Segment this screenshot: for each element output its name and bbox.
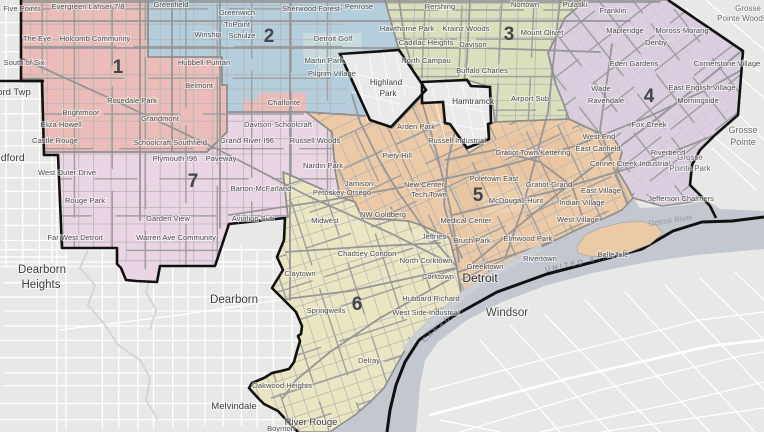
svg-text:Dearborn: Dearborn — [18, 264, 66, 276]
svg-text:Mapleridge: Mapleridge — [606, 26, 644, 35]
svg-text:West Village: West Village — [557, 215, 599, 224]
svg-text:Arden Park: Arden Park — [397, 122, 435, 131]
svg-text:Detroit: Detroit — [462, 271, 498, 285]
svg-text:North Campau: North Campau — [401, 56, 450, 65]
svg-text:Davison-Schoolcraft: Davison-Schoolcraft — [244, 120, 313, 129]
svg-text:Evergreen Lahser 7/8: Evergreen Lahser 7/8 — [51, 2, 124, 11]
svg-text:Park: Park — [380, 89, 398, 98]
svg-text:Greenwich: Greenwich — [219, 8, 255, 17]
svg-text:Hubbard Richard: Hubbard Richard — [402, 294, 459, 303]
svg-text:Heights: Heights — [22, 279, 61, 291]
svg-text:Schoolcraft Southfield: Schoolcraft Southfield — [133, 138, 207, 147]
svg-text:Pilgrim Village: Pilgrim Village — [308, 69, 356, 78]
svg-text:NW Goldberg: NW Goldberg — [360, 210, 406, 219]
svg-text:Dearborn: Dearborn — [210, 294, 258, 306]
svg-text:Grosse: Grosse — [735, 4, 761, 13]
svg-text:New Center: New Center — [404, 180, 445, 189]
svg-text:Fox Creek: Fox Creek — [631, 120, 666, 129]
svg-text:Russell Industrial: Russell Industrial — [428, 136, 486, 145]
svg-text:Plymouth-I96: Plymouth-I96 — [153, 154, 198, 163]
svg-text:East Village: East Village — [581, 186, 621, 195]
svg-text:Krainz Woods: Krainz Woods — [442, 24, 489, 33]
svg-text:Davison: Davison — [459, 40, 486, 49]
svg-text:Nortown: Nortown — [511, 0, 539, 9]
svg-text:Cornerstone Village: Cornerstone Village — [694, 59, 761, 68]
svg-text:Wade: Wade — [591, 84, 611, 93]
svg-text:East English Village: East English Village — [669, 83, 736, 92]
svg-text:Redford: Redford — [0, 152, 25, 164]
svg-text:Barton-McFarland: Barton-McFarland — [231, 184, 292, 193]
svg-text:Windsor: Windsor — [486, 307, 528, 319]
svg-text:Schulze: Schulze — [228, 31, 255, 40]
svg-text:Pointe Park: Pointe Park — [669, 164, 711, 173]
svg-text:5: 5 — [473, 185, 484, 206]
svg-text:Russell Woods: Russell Woods — [290, 136, 341, 145]
svg-text:Hawthorne Park: Hawthorne Park — [380, 24, 435, 33]
svg-text:6: 6 — [352, 294, 363, 315]
svg-text:Rivertown: Rivertown — [523, 254, 557, 263]
svg-text:Tech Town: Tech Town — [411, 190, 447, 199]
svg-text:Brightmoor: Brightmoor — [62, 108, 100, 117]
svg-text:Jefferson Chalmers: Jefferson Chalmers — [648, 194, 714, 203]
svg-text:Grosse: Grosse — [677, 153, 703, 162]
svg-text:Castle Rouge: Castle Rouge — [32, 136, 78, 145]
svg-text:Buffalo Charles: Buffalo Charles — [456, 66, 508, 75]
svg-text:Franklin: Franklin — [599, 6, 626, 15]
svg-text:The Eye: The Eye — [23, 34, 51, 43]
svg-text:Grand River-I96: Grand River-I96 — [220, 136, 274, 145]
svg-text:Pulaski: Pulaski — [563, 0, 588, 9]
svg-text:Far West Detroit: Far West Detroit — [47, 233, 103, 242]
svg-text:TriPoint: TriPoint — [224, 20, 251, 29]
svg-text:Winship: Winship — [194, 30, 221, 39]
svg-text:Brush Park: Brush Park — [453, 236, 491, 245]
svg-text:Melvindale: Melvindale — [211, 401, 256, 412]
svg-text:Gratiot-Grand: Gratiot-Grand — [526, 180, 572, 189]
svg-text:Oakwood Heights: Oakwood Heights — [252, 381, 312, 390]
svg-text:Petoskey-Otsego: Petoskey-Otsego — [313, 188, 371, 197]
svg-text:Medical Center: Medical Center — [440, 216, 492, 225]
svg-text:Greenfield: Greenfield — [153, 0, 188, 9]
svg-text:Pointe Woods: Pointe Woods — [717, 14, 764, 23]
svg-text:Moross-Morang: Moross-Morang — [655, 26, 708, 35]
svg-text:Chalfonte: Chalfonte — [268, 98, 301, 107]
svg-text:Greektown: Greektown — [467, 262, 504, 271]
svg-text:Eliza Howell: Eliza Howell — [40, 120, 82, 129]
svg-text:Delray: Delray — [358, 356, 380, 365]
svg-text:East Canfield: East Canfield — [575, 144, 620, 153]
svg-text:Mount Olivet: Mount Olivet — [521, 28, 565, 37]
svg-text:1: 1 — [113, 57, 124, 78]
svg-text:Chadsey Condon: Chadsey Condon — [338, 249, 397, 258]
svg-text:North Corktown: North Corktown — [400, 256, 453, 265]
svg-text:South of Six: South of Six — [4, 58, 45, 67]
svg-text:Denby: Denby — [645, 38, 667, 47]
svg-text:Grandmont: Grandmont — [141, 114, 180, 123]
svg-text:Martin Park: Martin Park — [305, 56, 344, 65]
svg-text:Jeffries: Jeffries — [422, 232, 447, 241]
svg-text:Rosedale Park: Rosedale Park — [107, 96, 157, 105]
svg-text:Hubbell-Puritan: Hubbell-Puritan — [178, 58, 230, 67]
svg-text:Belmont: Belmont — [185, 81, 214, 90]
svg-text:Elmwood Park: Elmwood Park — [504, 234, 553, 243]
svg-text:Springwells: Springwells — [307, 306, 346, 315]
svg-text:Highland: Highland — [370, 78, 403, 87]
svg-text:Cadillac Heights: Cadillac Heights — [399, 38, 454, 47]
svg-text:River Rouge: River Rouge — [285, 417, 338, 428]
svg-text:Detroit Golf: Detroit Golf — [314, 34, 353, 43]
svg-text:Pointe: Pointe — [730, 137, 756, 147]
svg-text:Gratiot Town/Kettering: Gratiot Town/Kettering — [496, 148, 571, 157]
svg-text:4: 4 — [644, 86, 655, 107]
svg-text:Holcomb Community: Holcomb Community — [60, 34, 131, 43]
svg-text:Conner Creek Industrial: Conner Creek Industrial — [590, 159, 671, 168]
svg-text:7: 7 — [188, 171, 199, 192]
svg-text:Jamison: Jamison — [345, 179, 373, 188]
svg-text:Morningside: Morningside — [677, 96, 718, 105]
svg-text:Corktown: Corktown — [422, 272, 454, 281]
svg-text:ord Twp: ord Twp — [0, 87, 31, 98]
svg-text:Rouge Park: Rouge Park — [65, 196, 105, 205]
svg-text:McDougall-Hunt: McDougall-Hunt — [489, 196, 544, 205]
svg-text:Sherwood Forest: Sherwood Forest — [282, 4, 341, 13]
svg-text:Eden Gardens: Eden Gardens — [610, 59, 659, 68]
svg-text:West Outer Drive: West Outer Drive — [38, 168, 96, 177]
svg-text:Poletown East: Poletown East — [470, 174, 519, 183]
svg-text:West End: West End — [583, 132, 616, 141]
svg-text:Penrose: Penrose — [345, 2, 373, 11]
svg-text:Claytown: Claytown — [284, 269, 315, 278]
svg-text:Aviation Sub: Aviation Sub — [232, 214, 275, 223]
svg-text:Five Points: Five Points — [3, 4, 41, 13]
svg-text:Warren Ave Community: Warren Ave Community — [136, 233, 216, 242]
svg-text:Ravendale: Ravendale — [588, 96, 624, 105]
svg-text:3: 3 — [504, 24, 515, 45]
svg-text:Airport Sub: Airport Sub — [511, 94, 549, 103]
svg-text:Midwest: Midwest — [311, 216, 340, 225]
svg-text:2: 2 — [264, 26, 275, 47]
svg-text:Piety Hill: Piety Hill — [382, 151, 412, 160]
svg-text:Nardin Park: Nardin Park — [303, 161, 343, 170]
svg-text:Garden View: Garden View — [146, 214, 190, 223]
svg-text:Grosse: Grosse — [728, 125, 757, 135]
svg-text:Paveway: Paveway — [206, 154, 237, 163]
svg-text:Indian Village: Indian Village — [559, 198, 604, 207]
svg-text:Rershing: Rershing — [425, 2, 455, 11]
svg-text:Hamtramck: Hamtramck — [452, 97, 495, 106]
